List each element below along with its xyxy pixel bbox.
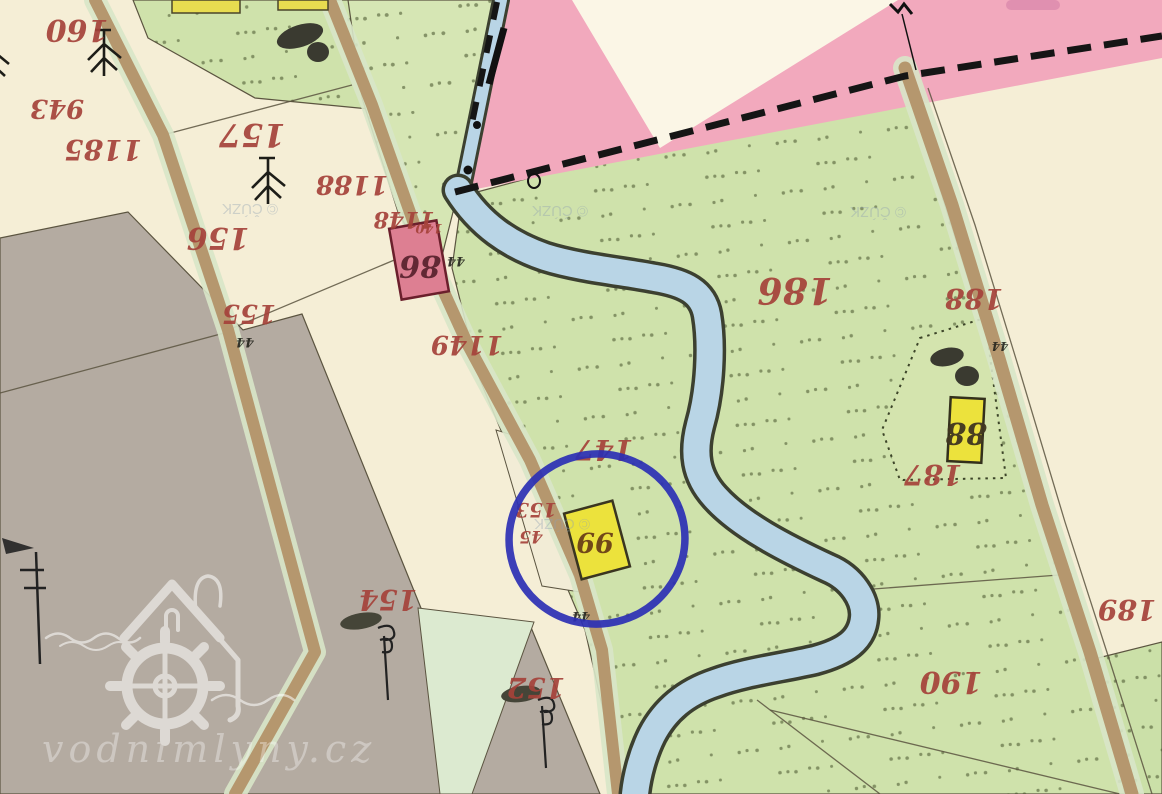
parcel-number: 1185 [64,133,142,166]
parcel-number: 188 [945,282,1003,315]
attribution-watermark: © ČÚZK [534,515,590,532]
map-viewport[interactable]: 160 943 1185 157 156 155 1188 1148 140 1… [0,0,1162,794]
parcel-number: 190 [920,664,983,699]
building-partial-top-2 [278,0,328,10]
parcel-number: 943 [30,93,84,123]
parcel-number: 186 [757,269,832,311]
parcel-number: 189 [1098,593,1156,626]
parcel-number: 140 [415,220,442,235]
parcel-number: 1149 [431,329,503,359]
building-number: 88 [945,415,988,450]
surveyor-mark: 44 [447,253,465,268]
attribution-watermark: © ČÚZK [532,202,588,219]
parcel-number: 152 [507,671,565,704]
attribution-watermark: © ČÚZK [222,200,278,217]
attribution-watermark: © ČÚZK [850,203,906,220]
surveyor-mark: 44 [236,334,254,349]
parcel-number: 154 [359,583,417,616]
water-wheel-gear-icon [110,631,220,741]
parcel-number: 160 [46,12,109,47]
surveyor-mark: 44 [992,339,1009,353]
parcel-number: 155 [222,298,276,328]
cadastral-map-canvas[interactable]: 160 943 1185 157 156 155 1188 1148 140 1… [0,0,1162,794]
building-number: 86 [399,248,442,283]
parcel-number: 1188 [316,169,388,199]
parcel-number: 156 [187,220,250,255]
parcel-number: 157 [219,116,286,154]
parcel-number: 187 [903,458,962,491]
site-watermark-text: vodnimlyny.cz [42,727,376,771]
pink-chip [1006,0,1060,10]
tree-blob [955,366,979,386]
building-partial-top-1 [172,0,240,13]
tree-blob [307,42,329,62]
